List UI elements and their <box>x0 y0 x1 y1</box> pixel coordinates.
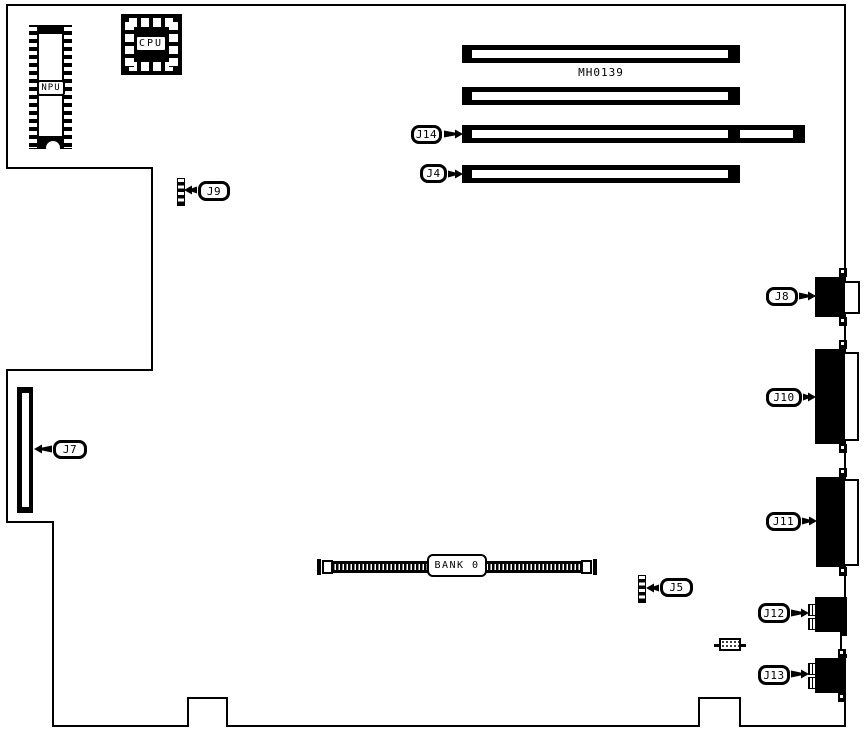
connector-mount-tab <box>839 340 847 349</box>
connector-j10 <box>815 349 844 444</box>
cpu-label: CPU <box>135 35 167 52</box>
callout-arrow-j7 <box>34 445 52 454</box>
expansion-slot-j14 <box>462 125 805 143</box>
expansion-slot-j4 <box>462 165 740 183</box>
callout-j4-label: J4 <box>426 167 440 180</box>
connector-mount-tab <box>839 567 847 576</box>
small-component <box>714 638 746 652</box>
callout-j13: J13 <box>758 665 790 685</box>
cpu-pads-bottom <box>129 62 174 71</box>
connector-mount-tab <box>838 693 846 702</box>
pin-header-j9 <box>177 178 185 206</box>
callout-arrow-j8 <box>799 292 816 301</box>
callout-j8: J8 <box>766 287 798 306</box>
slot-opening <box>472 50 728 58</box>
connector-j11 <box>816 477 844 567</box>
callout-j12: J12 <box>758 603 790 623</box>
callout-j11: J11 <box>766 512 801 531</box>
connector-j12-plug <box>808 604 817 616</box>
connector-j13-plug <box>808 677 817 689</box>
motherboard-diagram: MH0139 CPU NPU BANK 0 <box>0 0 864 734</box>
connector-j12 <box>815 597 847 632</box>
callout-arrow-j5 <box>646 584 659 593</box>
connector-j13 <box>815 658 844 693</box>
component-body <box>719 638 741 651</box>
npu-pins-right <box>64 26 72 148</box>
connector-mount-tab <box>839 444 847 453</box>
connector-mount-tab <box>839 468 847 477</box>
connector-j8 <box>815 277 844 317</box>
simm-socket-bank0: BANK 0 <box>317 558 597 576</box>
connector-j10-shell <box>843 352 859 441</box>
callout-arrow-j13 <box>791 670 809 679</box>
connector-mount-tab <box>838 649 846 658</box>
pin-header-j5 <box>638 575 646 603</box>
callout-j8-label: J8 <box>775 290 789 303</box>
callout-arrow-j11 <box>802 517 817 526</box>
connector-j13-plug <box>808 663 817 675</box>
slot-opening <box>472 170 728 178</box>
cpu-pads-right <box>169 22 178 67</box>
callout-j9-label: J9 <box>207 185 221 198</box>
npu-chip: NPU <box>29 25 72 149</box>
connector-j11-shell <box>843 479 859 566</box>
connector-j12-plug <box>808 618 817 630</box>
socket-end <box>593 559 597 575</box>
callout-j10-label: J10 <box>773 391 794 404</box>
callout-j5: J5 <box>660 578 693 597</box>
expansion-slot-1 <box>462 45 740 63</box>
npu-orientation-notch <box>44 139 62 149</box>
callout-j10: J10 <box>766 388 802 407</box>
callout-j11-label: J11 <box>773 515 794 528</box>
slot-opening <box>472 92 728 100</box>
component-lead <box>741 644 746 647</box>
npu-label: NPU <box>37 80 65 96</box>
socket-end <box>317 559 321 575</box>
cpu-chip: CPU <box>121 14 182 75</box>
slot-opening <box>740 130 793 138</box>
connector-j7 <box>17 387 33 513</box>
connector-j8-shell <box>843 281 860 314</box>
callout-j12-label: J12 <box>763 607 784 620</box>
board-outline <box>0 0 864 734</box>
expansion-slot-2 <box>462 87 740 105</box>
connector-mount-tab <box>839 268 847 277</box>
npu-pins-left <box>29 26 37 148</box>
callout-arrow-j4 <box>448 170 463 179</box>
cpu-pads-top <box>129 18 174 27</box>
connector-mount-tab <box>839 317 847 326</box>
callout-arrow-j9 <box>184 186 197 195</box>
slot-opening <box>472 130 728 138</box>
part-number-label: MH0139 <box>462 66 740 79</box>
callout-j7: J7 <box>53 440 87 459</box>
bank0-label: BANK 0 <box>427 554 487 577</box>
callout-j13-label: J13 <box>763 669 784 682</box>
callout-j5-label: J5 <box>669 581 683 594</box>
callout-j7-label: J7 <box>63 443 77 456</box>
slot-opening <box>22 393 29 507</box>
cpu-pads-left <box>125 22 134 67</box>
callout-j14-label: J14 <box>416 128 437 141</box>
callout-j4: J4 <box>420 164 447 183</box>
callout-arrow-j14 <box>444 130 463 139</box>
callout-j9: J9 <box>198 181 230 201</box>
callout-j14: J14 <box>411 125 442 144</box>
socket-latch <box>581 560 592 574</box>
callout-arrow-j12 <box>791 609 809 618</box>
